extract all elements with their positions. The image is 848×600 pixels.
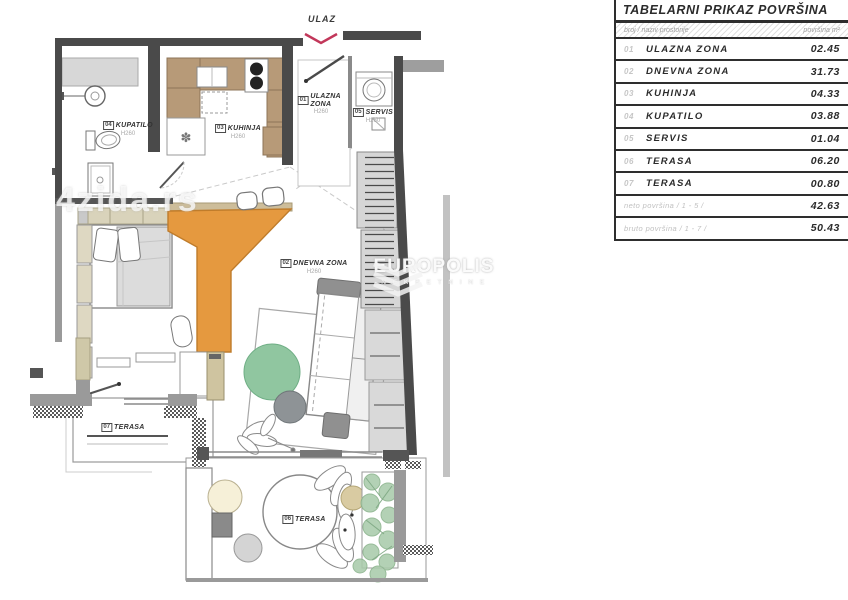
room-number: 04 [103,121,114,130]
entrance-label: ULAZ [308,14,336,24]
row-name: ULAZNA ZONA [646,44,811,55]
table-title: TABELARNI PRIKAZ POVRŠINA [616,0,848,23]
summary-value: 50.43 [811,222,840,234]
row-number: 04 [624,112,646,121]
room-name: KUPATILO [116,122,153,129]
bed [90,225,172,308]
row-value: 31.73 [811,66,840,78]
table-summary-row: neto površina / 1 - 5 / 42.63 [616,196,848,218]
room-number: 07 [101,423,112,432]
row-name: DNEVNA ZONA [646,66,811,77]
round-pouf-gray [274,391,306,423]
row-value: 00.80 [811,178,840,190]
room-height: H260 [215,134,261,140]
building-icon [370,256,426,300]
room-label-ulazna-zona: 01ULAZNA ZONA H260 [298,93,345,115]
table-col-right: površina m² [803,27,840,34]
room-name: DNEVNA ZONA [293,260,347,267]
summary-label: bruto površina / 1 - 7 / [624,224,811,233]
room-number: 02 [280,259,291,268]
row-value: 02.45 [811,43,840,55]
watermark-4zida: 4zida.rs [56,181,199,220]
row-name: SERVIS [646,133,811,144]
table-row: 06 TERASA 06.20 [616,151,848,173]
room-number: 06 [282,515,293,524]
watermark-europolis: EUROPOLIS N E K R E T N I N E [370,256,498,286]
table-row: 02 DNEVNA ZONA 31.73 [616,61,848,83]
row-number: 01 [624,45,646,54]
row-name: TERASA [646,156,811,167]
room-label-kupatilo: 04KUPATILO H260 [103,121,153,137]
room-height: H260 [103,131,153,137]
room-name: ULAZNA ZONA [310,93,344,108]
summary-label: neto površina / 1 - 5 / [624,201,811,210]
room-name: KUHINJA [228,125,261,132]
table-summary-row: bruto površina / 1 - 7 / 50.43 [616,218,848,240]
room-label-terasa-07: 07TERASA [101,423,144,432]
floor-plan-drawing: ✽ [0,0,620,600]
room-label-servis: 05SERVIS H260 [353,108,393,124]
screenshot-root: ✽ [0,0,848,600]
room-label-terasa-06: 06TERASA [282,515,325,524]
row-value: 04.33 [811,88,840,100]
area-table: TABELARNI PRIKAZ POVRŠINA broj / naziv p… [614,0,848,241]
table-row: 07 TERASA 00.80 [616,173,848,195]
room-label-dnevna-zona: 02DNEVNA ZONA H260 [280,259,347,275]
row-name: TERASA [646,178,811,189]
entry-rug [298,60,350,186]
row-number: 03 [624,89,646,98]
room-label-kuhinja: 03KUHINJA H260 [215,124,261,140]
washbasin [85,86,105,106]
room-number: 01 [298,96,309,105]
row-number: 02 [624,67,646,76]
extractor-fan-icon: ✽ [181,130,192,145]
terrace-table [208,480,242,514]
table-col-left: broj / naziv prostorije [624,27,689,34]
row-value: 06.20 [811,155,840,167]
room-height: H260 [298,109,345,115]
table-row: 04 KUPATILO 03.88 [616,106,848,128]
room-height: H260 [353,118,393,124]
ulaz-arrow-icon [305,34,337,43]
table-row: 05 SERVIS 01.04 [616,129,848,151]
room-height: H260 [280,269,347,275]
row-value: 01.04 [811,133,840,145]
row-number: 05 [624,134,646,143]
room-number: 05 [353,108,364,117]
room-name: TERASA [295,516,326,523]
pillow [117,227,140,262]
room-name: SERVIS [366,109,393,116]
row-value: 03.88 [811,110,840,122]
summary-value: 42.63 [811,200,840,212]
room-number: 03 [215,124,226,133]
room-name: TERASA [114,424,145,431]
pillow [93,228,119,263]
row-name: KUPATILO [646,111,811,122]
row-number: 07 [624,179,646,188]
row-number: 06 [624,157,646,166]
table-header: broj / naziv prostorije površina m² [616,23,848,39]
table-row: 01 ULAZNA ZONA 02.45 [616,39,848,61]
row-name: KUHINJA [646,88,811,99]
floor-plan: ✽ [0,0,620,600]
table-row: 03 KUHINJA 04.33 [616,84,848,106]
